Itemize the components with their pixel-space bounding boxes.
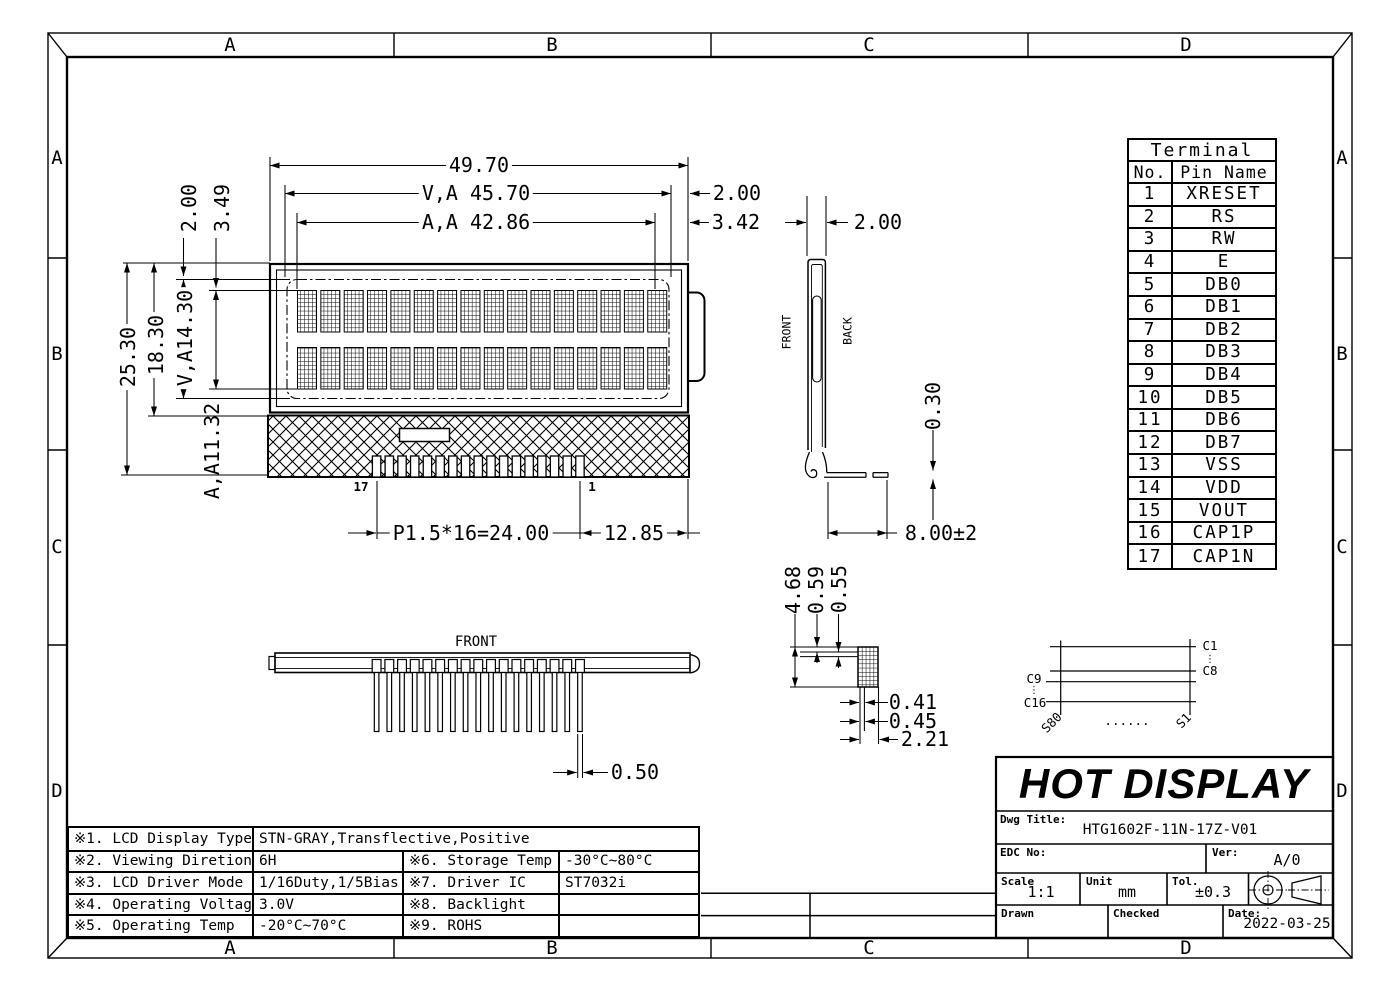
zone-letter-bottom-d: D bbox=[1180, 937, 1191, 959]
spec-label: ※9. ROHS bbox=[404, 916, 560, 936]
pins-front-view bbox=[372, 456, 584, 477]
dim-display-height: 18.30 bbox=[146, 312, 166, 378]
zone-letter-right-c: C bbox=[1336, 536, 1347, 558]
terminal-pin-no: 2 bbox=[1129, 207, 1173, 228]
terminal-row: 16CAP1P bbox=[1129, 523, 1275, 546]
date-value: 2022-03-25 bbox=[1243, 916, 1330, 932]
spec-value: STN-GRAY,Transflective,Positive bbox=[254, 828, 698, 850]
spec-label: ※1. LCD Display Type bbox=[69, 828, 254, 850]
pin-head bbox=[461, 660, 470, 673]
terminal-pin-name: VDD bbox=[1173, 478, 1275, 499]
projection-symbol bbox=[1249, 871, 1329, 909]
pin bbox=[500, 456, 508, 477]
character-block bbox=[414, 291, 433, 333]
terminal-pin-no: 16 bbox=[1129, 523, 1173, 544]
character-block bbox=[601, 348, 620, 390]
unit-label: Unit bbox=[1086, 875, 1113, 888]
character-block bbox=[484, 348, 503, 390]
pin-head bbox=[563, 660, 572, 673]
terminal-table-title: Terminal bbox=[1129, 140, 1275, 162]
terminal-pin-name: CAP1P bbox=[1173, 523, 1275, 544]
scale-value: 1:1 bbox=[1027, 883, 1054, 901]
spec-value: 1/16Duty,1/5Bias bbox=[254, 873, 404, 893]
lcd-module-front-view bbox=[268, 264, 705, 477]
pin-leg bbox=[514, 673, 519, 732]
terminal-row: 6DB1 bbox=[1129, 297, 1275, 320]
ver-value: A/0 bbox=[1273, 851, 1300, 869]
terminal-pin-name: DB0 bbox=[1173, 274, 1275, 295]
tol-value: ±0.3 bbox=[1195, 883, 1231, 901]
character-block bbox=[531, 291, 550, 333]
spec-value: -20°C~70°C bbox=[254, 916, 404, 936]
spec-label: ※5. Operating Temp bbox=[69, 916, 254, 936]
pin-leg bbox=[438, 673, 443, 732]
dim-pin-pitch: P1.5*16=24.00 bbox=[390, 523, 553, 543]
character-block bbox=[391, 291, 410, 333]
terminal-row: 9DB4 bbox=[1129, 365, 1275, 388]
character-block bbox=[461, 348, 480, 390]
side-tab bbox=[688, 293, 705, 382]
character-block bbox=[438, 348, 457, 390]
company-logo-text: HOT DISPLAY bbox=[1019, 760, 1309, 808]
character-block bbox=[578, 291, 597, 333]
pin-leg bbox=[425, 673, 430, 732]
character-block bbox=[414, 348, 433, 390]
terminal-pin-name: DB6 bbox=[1173, 410, 1275, 431]
dim-aa-top-offset: 3.49 bbox=[212, 181, 232, 235]
pin bbox=[576, 456, 584, 477]
pin bbox=[411, 456, 419, 477]
terminal-pin-no: 14 bbox=[1129, 478, 1173, 499]
terminal-pin-no: 11 bbox=[1129, 410, 1173, 431]
terminal-row: 13VSS bbox=[1129, 455, 1275, 478]
character-block bbox=[484, 291, 503, 333]
dim-stack-width: 2.21 bbox=[898, 729, 952, 749]
ver-label: Ver: bbox=[1212, 846, 1239, 859]
character-block bbox=[344, 291, 363, 333]
terminal-table-header: No. Pin Name bbox=[1129, 162, 1275, 184]
spec-row: ※2. Viewing Diretion6H※6. Storage Temp-3… bbox=[69, 850, 698, 872]
pin bbox=[385, 456, 393, 477]
drawn-label: Drawn bbox=[1001, 907, 1034, 920]
character-block bbox=[438, 291, 457, 333]
spec-table: ※1. LCD Display Type STN-GRAY,Transflect… bbox=[67, 826, 700, 938]
terminal-pin-table: Terminal No. Pin Name 1XRESET2RS3RW4E5DB… bbox=[1127, 138, 1277, 570]
connector-c16-label: C16 bbox=[1021, 697, 1050, 710]
terminal-row: 8DB3 bbox=[1129, 342, 1275, 365]
terminal-row: 12DB7 bbox=[1129, 432, 1275, 455]
terminal-pin-no: 1 bbox=[1129, 184, 1173, 205]
terminal-header-pin-name: Pin Name bbox=[1173, 162, 1275, 182]
dim-pin-right-offset: 12.85 bbox=[601, 523, 667, 543]
spec-value bbox=[560, 895, 698, 915]
terminal-pin-no: 10 bbox=[1129, 387, 1173, 408]
spec-label: ※2. Viewing Diretion bbox=[69, 852, 254, 872]
pin bbox=[436, 456, 444, 477]
dim-active-area-width: A,A 42.86 bbox=[419, 212, 533, 232]
connector-c1-label: C1 bbox=[1199, 640, 1220, 653]
side-front-label: FRONT bbox=[781, 312, 793, 353]
character-block bbox=[298, 291, 317, 333]
terminal-pin-no: 15 bbox=[1129, 500, 1173, 521]
pin bbox=[398, 456, 406, 477]
character-block bbox=[624, 291, 643, 333]
spec-value: 6H bbox=[254, 852, 404, 872]
pin-head bbox=[474, 660, 483, 673]
spec-label: ※7. Driver IC bbox=[404, 873, 560, 893]
pin-head bbox=[499, 660, 508, 673]
dim-stack-height: 4.68 bbox=[783, 563, 803, 617]
dim-va-width-offset: 2.00 bbox=[710, 183, 764, 203]
zone-letter-top-b: B bbox=[546, 34, 557, 56]
dim-side-thickness: 2.00 bbox=[851, 212, 905, 232]
character-block bbox=[368, 348, 387, 390]
pin-head bbox=[436, 660, 445, 673]
pin-head bbox=[423, 660, 432, 673]
pin bbox=[538, 456, 546, 477]
spec-label: ※3. LCD Driver Mode bbox=[69, 873, 254, 893]
spec-row: ※3. LCD Driver Mode1/16Duty,1/5Bias※7. D… bbox=[69, 871, 698, 893]
terminal-pin-name: E bbox=[1173, 252, 1275, 273]
terminal-pin-name: DB3 bbox=[1173, 342, 1275, 363]
pin-head bbox=[550, 660, 559, 673]
slot-cutout bbox=[400, 429, 450, 442]
character-block bbox=[648, 291, 667, 333]
spec-table-extra-cells bbox=[701, 893, 996, 937]
dim-pin-width: 0.50 bbox=[608, 762, 662, 782]
character-block bbox=[648, 348, 667, 390]
terminal-pin-name: RS bbox=[1173, 207, 1275, 228]
pin-head bbox=[525, 660, 534, 673]
engineering-drawing-sheet: A B C D A B C D A B C D A B C D 49.70 V,… bbox=[0, 0, 1400, 989]
zone-letter-top-d: D bbox=[1180, 34, 1191, 56]
pin-leg bbox=[552, 673, 557, 732]
terminal-row: 11DB6 bbox=[1129, 410, 1275, 433]
bottom-front-label: FRONT bbox=[452, 635, 500, 649]
terminal-header-no: No. bbox=[1129, 162, 1173, 182]
terminal-row: 17CAP1N bbox=[1129, 545, 1275, 568]
dim-stack-t1: 0.59 bbox=[806, 563, 826, 617]
terminal-pin-name: DB1 bbox=[1173, 297, 1275, 318]
terminal-pin-no: 12 bbox=[1129, 432, 1173, 453]
character-block bbox=[554, 291, 573, 333]
pin bbox=[487, 456, 495, 477]
pin-head bbox=[576, 660, 585, 673]
zone-letter-left-c: C bbox=[51, 536, 62, 558]
pins-bottom-view bbox=[372, 660, 584, 732]
zone-letter-right-a: A bbox=[1336, 147, 1347, 169]
dim-viewing-area-width: V,A 45.70 bbox=[419, 183, 533, 203]
pin-head bbox=[512, 660, 521, 673]
spec-label: ※4. Operating Voltage bbox=[69, 895, 254, 915]
dim-active-area-height: A,A11.32 bbox=[202, 400, 222, 502]
connector-c9-label: C9 bbox=[1023, 673, 1044, 686]
zone-letter-left-a: A bbox=[51, 147, 62, 169]
pin-number-1: 1 bbox=[585, 481, 599, 494]
pin-head bbox=[487, 660, 496, 673]
character-block bbox=[298, 348, 317, 390]
pin-leg bbox=[565, 673, 570, 732]
terminal-row: 2RS bbox=[1129, 207, 1275, 230]
terminal-pin-no: 3 bbox=[1129, 229, 1173, 250]
pin bbox=[449, 456, 457, 477]
pin-leg bbox=[463, 673, 468, 732]
terminal-pin-name: VSS bbox=[1173, 455, 1275, 476]
terminal-row: 1XRESET bbox=[1129, 184, 1275, 207]
terminal-pin-name: RW bbox=[1173, 229, 1275, 250]
spec-row: ※4. Operating Voltage3.0V※8. Backlight bbox=[69, 893, 698, 915]
zone-letter-right-b: B bbox=[1336, 343, 1347, 365]
pin bbox=[525, 456, 533, 477]
pin bbox=[563, 456, 571, 477]
pin-leg bbox=[476, 673, 481, 732]
terminal-pin-no: 7 bbox=[1129, 320, 1173, 341]
connector-mapping-diagram bbox=[1046, 639, 1196, 715]
pin bbox=[550, 456, 558, 477]
spec-label: ※8. Backlight bbox=[404, 895, 560, 915]
spec-value: -30°C~80°C bbox=[560, 852, 698, 872]
terminal-pin-name: CAP1N bbox=[1173, 545, 1275, 568]
character-blocks bbox=[298, 291, 667, 390]
character-block bbox=[508, 291, 527, 333]
terminal-pin-no: 17 bbox=[1129, 545, 1173, 568]
terminal-row: 4E bbox=[1129, 252, 1275, 275]
pin-leg bbox=[451, 673, 456, 732]
terminal-pin-no: 8 bbox=[1129, 342, 1173, 363]
dwg-title-label: Dwg Title: bbox=[1000, 813, 1066, 826]
pin-leg bbox=[578, 673, 583, 732]
pin-leg bbox=[540, 673, 545, 732]
spec-value bbox=[560, 916, 698, 936]
pin-head bbox=[537, 660, 546, 673]
dim-viewing-area-height: V,A14.30 bbox=[175, 287, 195, 389]
terminal-row: 3RW bbox=[1129, 229, 1275, 252]
character-block bbox=[601, 291, 620, 333]
terminal-pin-name: DB4 bbox=[1173, 365, 1275, 386]
dim-tail-thickness: 0.30 bbox=[923, 379, 943, 433]
pin bbox=[372, 456, 380, 477]
dim-va-top-offset: 2.00 bbox=[179, 181, 199, 235]
character-block bbox=[321, 348, 340, 390]
unit-value: mm bbox=[1118, 883, 1136, 901]
terminal-pin-name: DB2 bbox=[1173, 320, 1275, 341]
pin-leg bbox=[400, 673, 405, 732]
edc-no-label: EDC No: bbox=[1000, 846, 1046, 859]
terminal-pin-no: 13 bbox=[1129, 455, 1173, 476]
spec-value: ST7032i bbox=[560, 873, 698, 893]
pin-leg bbox=[374, 673, 379, 732]
pin-number-17: 17 bbox=[350, 481, 371, 494]
zone-letter-top-c: C bbox=[863, 34, 874, 56]
terminal-pin-name: DB5 bbox=[1173, 387, 1275, 408]
character-block bbox=[368, 291, 387, 333]
connector-hdots: ...... bbox=[1101, 715, 1152, 728]
character-block bbox=[578, 348, 597, 390]
spec-row: ※5. Operating Temp-20°C~70°C※9. ROHS bbox=[69, 914, 698, 936]
dim-aa-width-offset: 3.42 bbox=[709, 212, 763, 232]
terminal-pin-no: 4 bbox=[1129, 252, 1173, 273]
pin-head bbox=[398, 660, 407, 673]
spec-row-1: ※1. LCD Display Type STN-GRAY,Transflect… bbox=[69, 828, 698, 850]
connector-c8-label: C8 bbox=[1199, 665, 1220, 678]
dim-stack-t2: 0.55 bbox=[829, 562, 849, 616]
pin bbox=[512, 456, 520, 477]
dim-overall-width: 49.70 bbox=[446, 155, 512, 175]
pin-head bbox=[372, 660, 381, 673]
lcd-module-side-view bbox=[785, 196, 933, 539]
character-block bbox=[554, 348, 573, 390]
zone-letter-bottom-c: C bbox=[863, 937, 874, 959]
terminal-row: 14VDD bbox=[1129, 478, 1275, 501]
spec-value: 3.0V bbox=[254, 895, 404, 915]
zone-letter-bottom-b: B bbox=[546, 937, 557, 959]
terminal-pin-no: 6 bbox=[1129, 297, 1173, 318]
terminal-pin-no: 5 bbox=[1129, 274, 1173, 295]
pin bbox=[461, 456, 469, 477]
pin bbox=[423, 456, 431, 477]
character-block bbox=[531, 348, 550, 390]
zone-letter-left-d: D bbox=[51, 780, 62, 802]
dim-overall-height: 25.30 bbox=[118, 324, 138, 390]
pin-leg bbox=[527, 673, 532, 732]
zone-letter-top-a: A bbox=[224, 34, 235, 56]
zone-letter-bottom-a: A bbox=[224, 937, 235, 959]
character-block bbox=[508, 348, 527, 390]
zone-letter-left-b: B bbox=[51, 343, 62, 365]
terminal-row: 10DB5 bbox=[1129, 387, 1275, 410]
dwg-title-value: HTG1602F-11N-17Z-V01 bbox=[1083, 822, 1258, 838]
terminal-pin-name: XRESET bbox=[1173, 184, 1275, 205]
pin-leg bbox=[412, 673, 417, 732]
side-back-label: BACK bbox=[842, 314, 854, 348]
pin-stack-detail bbox=[790, 614, 898, 744]
zone-letter-right-d: D bbox=[1336, 780, 1347, 802]
terminal-row: 15VOUT bbox=[1129, 500, 1275, 523]
pin-head bbox=[448, 660, 457, 673]
character-block bbox=[321, 291, 340, 333]
pin-head bbox=[410, 660, 419, 673]
character-block bbox=[344, 348, 363, 390]
character-block bbox=[624, 348, 643, 390]
terminal-pin-no: 9 bbox=[1129, 365, 1173, 386]
pin-leg bbox=[489, 673, 494, 732]
pin bbox=[474, 456, 482, 477]
dim-tail-length: 8.00±2 bbox=[902, 523, 980, 543]
terminal-row: 7DB2 bbox=[1129, 320, 1275, 343]
terminal-row: 5DB0 bbox=[1129, 274, 1275, 297]
checked-label: Checked bbox=[1113, 907, 1159, 920]
terminal-pin-name: VOUT bbox=[1173, 500, 1275, 521]
terminal-pin-name: DB7 bbox=[1173, 432, 1275, 453]
pin-leg bbox=[387, 673, 392, 732]
pin-head bbox=[385, 660, 394, 673]
character-block bbox=[391, 348, 410, 390]
spec-label: ※6. Storage Temp bbox=[404, 852, 560, 872]
pin-leg bbox=[501, 673, 506, 732]
character-block bbox=[461, 291, 480, 333]
